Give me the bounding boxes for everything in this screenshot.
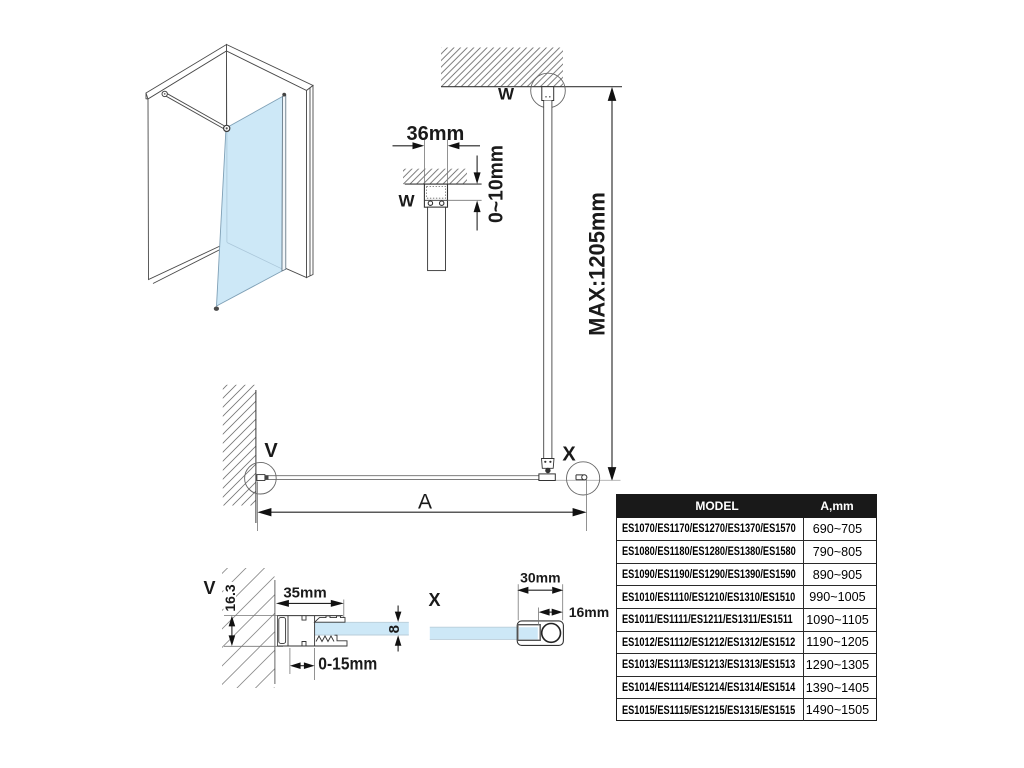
svg-text:0-15mm: 0-15mm — [318, 654, 377, 674]
svg-text:8: 8 — [386, 625, 403, 633]
svg-text:X: X — [562, 444, 576, 466]
svg-text:X: X — [428, 590, 440, 610]
svg-text:35mm: 35mm — [283, 585, 326, 602]
svg-text:V: V — [264, 440, 278, 462]
svg-text:V: V — [203, 578, 215, 598]
svg-text:A: A — [418, 491, 432, 514]
svg-text:MAX:1205mm: MAX:1205mm — [585, 192, 610, 336]
svg-text:W: W — [498, 85, 515, 104]
svg-text:30mm: 30mm — [520, 570, 560, 586]
svg-text:W: W — [398, 192, 415, 211]
svg-text:16mm: 16mm — [569, 604, 609, 620]
svg-text:0~10mm: 0~10mm — [485, 145, 507, 223]
svg-text:16.3: 16.3 — [222, 584, 238, 611]
svg-text:36mm: 36mm — [406, 123, 464, 145]
